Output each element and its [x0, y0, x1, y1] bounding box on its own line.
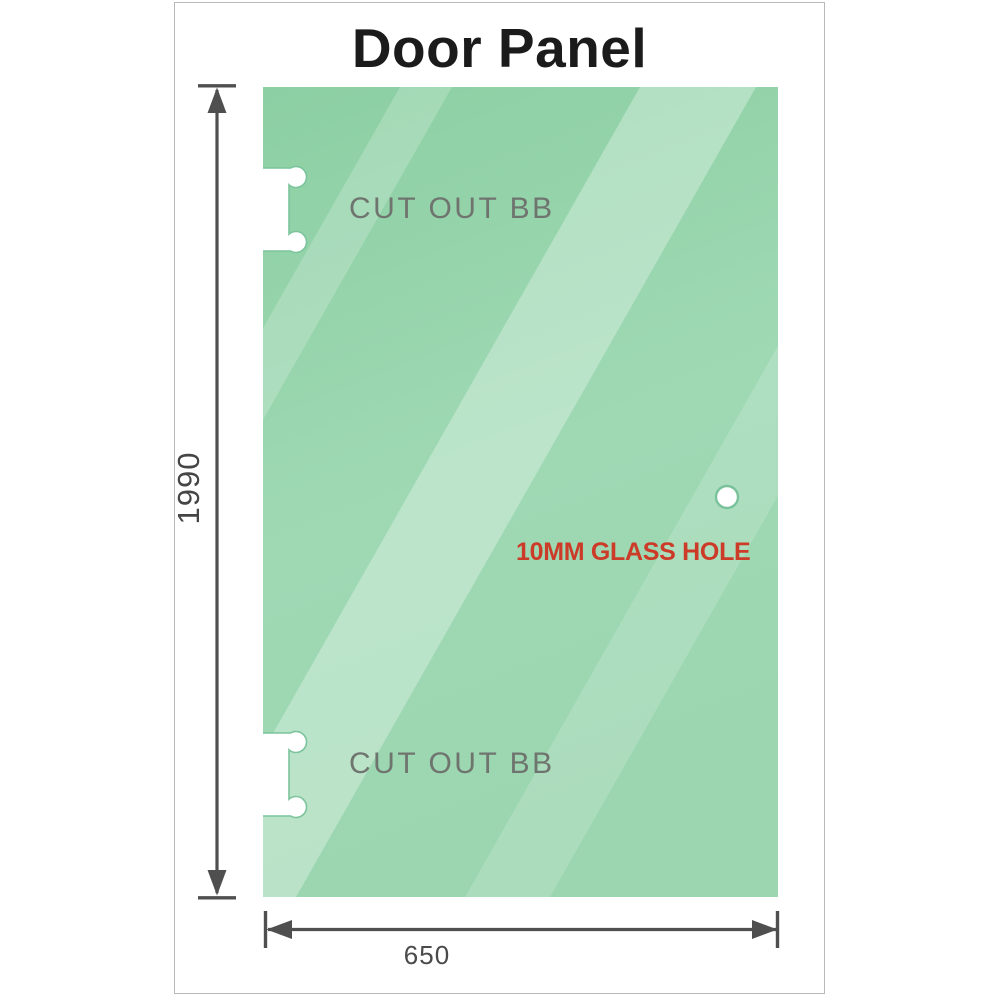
height-dimension-value: 1990 [173, 445, 205, 531]
cutout-bottom-label: CUT OUT BB [349, 747, 555, 781]
arrow-up-icon [208, 88, 227, 114]
glass-hole-label: 10MM GLASS HOLE [516, 538, 750, 567]
arrow-down-icon [208, 870, 227, 896]
width-dimension [266, 911, 778, 948]
door-panel-drawing [0, 0, 1000, 1000]
width-dimension-value: 650 [392, 940, 462, 971]
page-title: Door Panel [174, 16, 825, 80]
glass-hole [716, 486, 738, 508]
arrow-right-icon [752, 920, 778, 939]
arrow-left-icon [267, 920, 293, 939]
cutout-top-label: CUT OUT BB [349, 192, 555, 226]
